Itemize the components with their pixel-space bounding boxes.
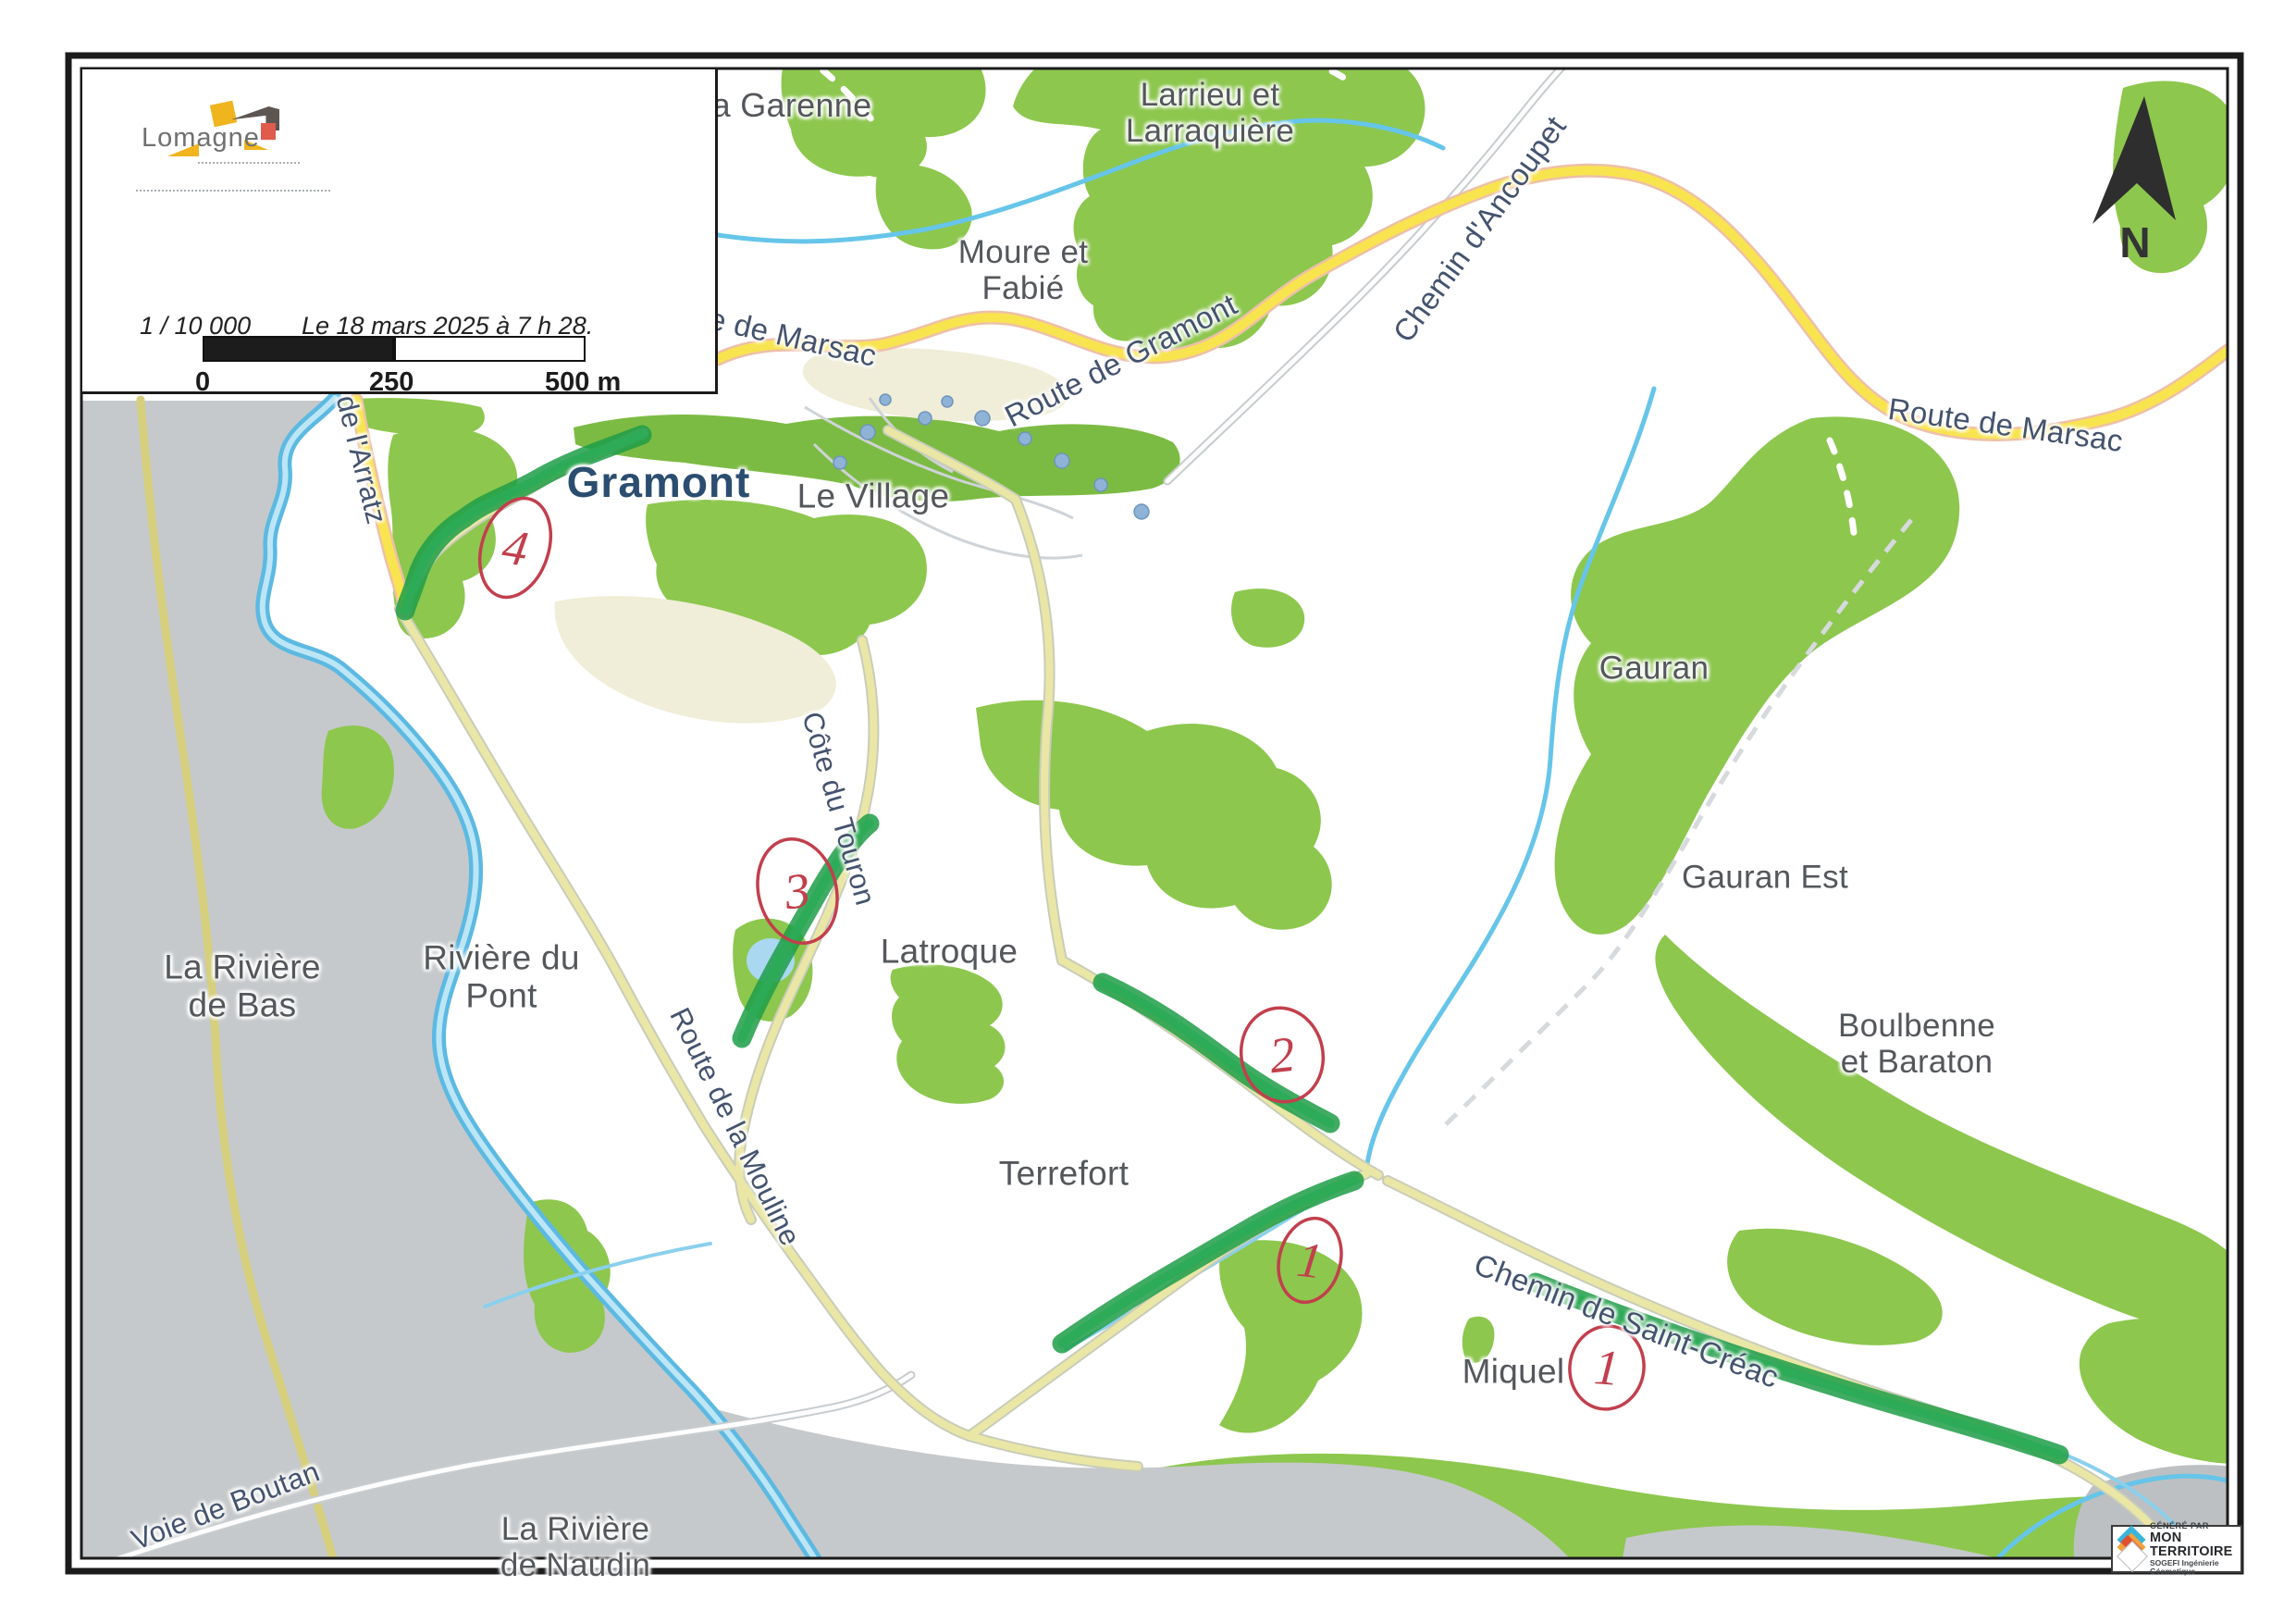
logo-baseline-scribble: [136, 190, 330, 192]
legend-panel: Lomagne 1 / 10 000 Le 18 mars 2025 à 7 h…: [82, 69, 718, 394]
logo-wordmark: Lomagne: [142, 123, 260, 154]
scalebar-black-half: [203, 336, 394, 362]
scalebar-end: 500 m: [545, 367, 621, 398]
scalebar-zero: 0: [195, 367, 210, 398]
logo-tagline-scribble: [198, 162, 300, 164]
scalebar-mid: 250: [369, 367, 414, 398]
lomagne-logo: Lomagne: [110, 86, 388, 206]
scanned-map-page: 43211 N a GarenneLarrieu et LarraquièreM…: [0, 0, 2296, 1623]
credit-brand: MON TERRITOIRE: [2150, 1531, 2239, 1559]
scalebar-white-half: [394, 336, 586, 362]
logo-red-block: [261, 123, 276, 140]
credit-company: SOGEFI Ingénierie Géomatique: [2150, 1559, 2239, 1576]
annotation-number-1: 1: [1592, 1339, 1621, 1396]
layers-icon: [2113, 1529, 2150, 1569]
credit-badge: GÉNÉRÉ PAR MON TERRITOIRE SOGEFI Ingénie…: [2111, 1525, 2242, 1573]
